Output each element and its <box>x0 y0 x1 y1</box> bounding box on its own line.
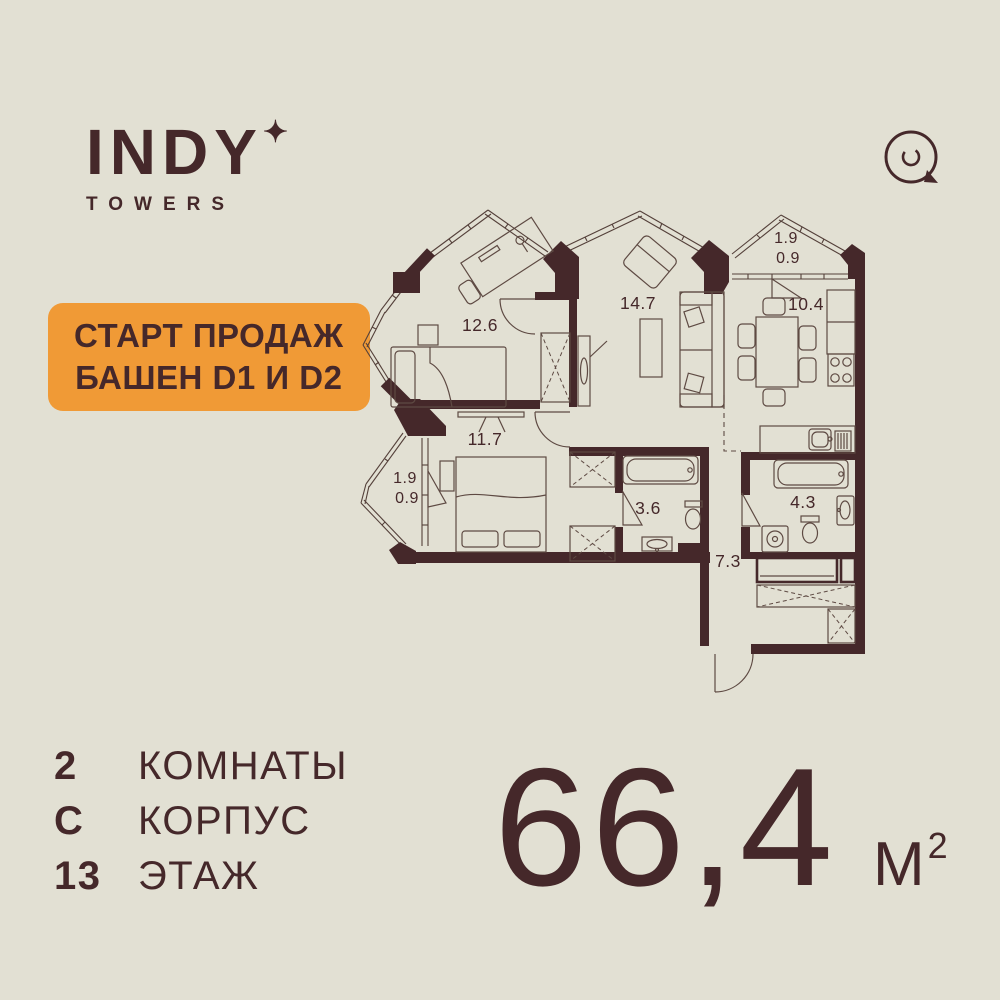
wardrobe <box>541 333 570 402</box>
room-label-living: 14.7 <box>620 293 656 313</box>
sales-badge-line2: БАШЕН D1 И D2 <box>74 357 344 399</box>
room-label-bathroom2: 4.3 <box>790 492 816 512</box>
brand-logo: INDY✦ TOWERS <box>86 120 294 216</box>
hall-wardrobe <box>757 585 855 607</box>
bathroom-sink <box>837 496 854 525</box>
balcony-kitchen-area-reduced: 0.9 <box>776 250 800 267</box>
spec-building-label: КОРПУС <box>138 799 311 844</box>
spec-floor-value: 13 <box>54 854 124 899</box>
room-label-bathroom1: 3.6 <box>635 498 661 518</box>
balcony-kitchen-area-total: 1.9 <box>774 230 798 247</box>
double-bed <box>440 457 546 552</box>
bathroom-sink <box>642 537 672 552</box>
room-label-hallway: 7.3 <box>715 551 741 571</box>
total-area-unit: М2 <box>873 829 947 900</box>
room-label-kitchen: 10.4 <box>788 294 824 314</box>
washing-machine <box>762 526 788 552</box>
spec-rooms-value: 2 <box>54 744 124 789</box>
spec-rooms: 2 КОМНАТЫ <box>54 744 348 789</box>
toilet <box>685 501 702 529</box>
window-bands <box>361 210 848 547</box>
spec-building: С КОРПУС <box>54 799 311 844</box>
floor-plan: 12.6 14.7 10.4 11.7 3.6 4.3 7.3 1.9 0.9 … <box>358 195 878 710</box>
hall-wardrobe <box>828 609 855 643</box>
single-bed <box>391 325 506 407</box>
total-area-value: 66,4 <box>494 743 837 911</box>
star-icon: ✦ <box>263 118 294 148</box>
bathtub <box>623 456 698 484</box>
balcony-bedroom-area-total: 1.9 <box>393 470 417 487</box>
toilet <box>801 516 819 543</box>
kitchen-sink <box>809 429 851 451</box>
room-label-bedroom1: 11.7 <box>468 429 503 449</box>
spec-rooms-label: КОМНАТЫ <box>138 744 348 789</box>
coffee-table <box>640 319 662 377</box>
room-label-bedroom2: 12.6 <box>462 315 498 335</box>
spec-floor-label: ЭТАЖ <box>138 854 259 899</box>
compass-icon <box>882 128 946 192</box>
open-boundary-dashed <box>724 395 741 451</box>
sofa <box>680 292 724 407</box>
bathtub <box>774 460 848 488</box>
listing-poster: INDY✦ TOWERS СТАРТ ПРОДАЖ БАШЕН D1 И D2 <box>0 0 1000 1000</box>
spec-building-value: С <box>54 799 124 844</box>
sales-badge: СТАРТ ПРОДАЖ БАШЕН D1 И D2 <box>48 303 370 411</box>
stove <box>828 354 854 386</box>
brand-subtitle: TOWERS <box>86 194 294 216</box>
wardrobe <box>570 452 615 487</box>
total-area: 66,4 М2 <box>494 743 947 911</box>
brand-name: INDY✦ <box>86 120 294 184</box>
balcony-bedroom-area-reduced: 0.9 <box>395 490 419 507</box>
armchair <box>622 234 679 290</box>
mirror-panel <box>578 336 607 406</box>
sales-badge-line1: СТАРТ ПРОДАЖ <box>74 315 344 357</box>
spec-floor: 13 ЭТАЖ <box>54 854 259 899</box>
hall-shelf <box>757 558 855 582</box>
dining-table <box>738 298 816 406</box>
